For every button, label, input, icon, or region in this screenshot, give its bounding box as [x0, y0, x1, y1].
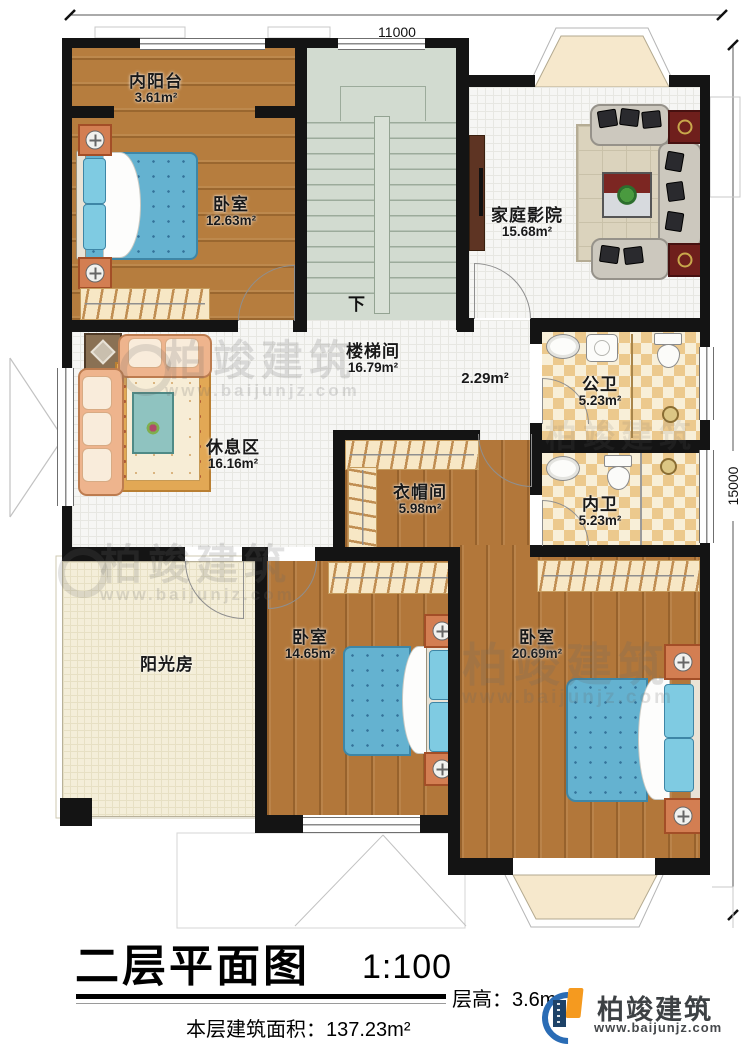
watermark-logo-icon — [120, 344, 172, 396]
room-name: 卧室 — [519, 629, 555, 647]
sofa-pillow — [664, 151, 684, 173]
wall — [530, 332, 542, 344]
stair-down-label: 下 — [348, 290, 365, 315]
plan-scale: 1:100 — [362, 948, 452, 987]
room-area: 2.29m² — [461, 371, 509, 387]
lamp-icon — [674, 653, 693, 672]
wall — [60, 798, 92, 826]
bed — [566, 678, 648, 802]
sofa-pillow — [666, 181, 685, 202]
room-area: 15.68m² — [502, 225, 552, 240]
room-label-private-bath: 内卫 5.23m² — [545, 494, 655, 530]
room-area: 16.79m² — [348, 361, 398, 376]
room-area: 16.16m² — [208, 457, 258, 472]
wall — [62, 320, 238, 332]
wall — [530, 545, 710, 557]
room-name: 家庭影院 — [491, 207, 563, 225]
pillow — [83, 204, 106, 250]
title-rule — [76, 994, 446, 999]
window — [140, 38, 265, 50]
side-table — [668, 243, 702, 277]
dimension-top: 11000 — [357, 24, 437, 40]
wardrobe — [537, 560, 700, 592]
lamp-icon — [674, 807, 693, 826]
room-label-bedroom3: 卧室 20.69m² — [485, 626, 589, 664]
room-area: 3.61m² — [135, 91, 178, 106]
room-label-bedroom2: 卧室 14.65m² — [258, 626, 362, 664]
room-name: 卧室 — [292, 629, 328, 647]
wall — [293, 320, 307, 332]
title-rule-thin — [76, 1003, 446, 1004]
room-area: 5.23m² — [579, 514, 622, 529]
sofa-cushion — [82, 376, 112, 410]
room-label-cloakroom: 衣帽间 5.98m² — [362, 482, 478, 518]
logo-icon — [542, 986, 592, 1038]
sofa-pillow — [619, 108, 640, 127]
nightstand — [78, 257, 112, 289]
floor-area: 本层建筑面积：137.23m² — [186, 1013, 411, 1042]
room-name: 内卫 — [582, 496, 618, 514]
wall — [295, 38, 307, 332]
room-name: 阳光房 — [140, 656, 194, 674]
room-area: 20.69m² — [512, 647, 562, 662]
room-label-neiyangtai: 内阳台 3.61m² — [106, 72, 206, 106]
wall — [700, 330, 710, 347]
room-name: 楼梯间 — [346, 343, 400, 361]
medallion-icon — [678, 253, 693, 268]
shower-knob — [660, 458, 677, 475]
pillow — [83, 158, 106, 204]
stair-rail — [374, 116, 390, 314]
sofa-pillow — [599, 245, 620, 264]
room-name: 卧室 — [213, 196, 249, 214]
logo-tower-blue — [553, 1000, 566, 1027]
room-label-landing: 2.29m² — [440, 370, 530, 388]
room-label-sunroom: 阳光房 — [107, 652, 227, 678]
lamp-icon — [86, 131, 105, 150]
side-table — [668, 110, 702, 144]
room-area: 14.65m² — [285, 647, 335, 662]
room-name: 休息区 — [206, 439, 260, 457]
sofa-pillow — [623, 246, 644, 265]
wall — [542, 440, 710, 453]
nightstand — [664, 644, 702, 680]
wall — [420, 815, 460, 833]
wall — [655, 858, 710, 875]
logo-tower-orange — [565, 988, 583, 1018]
shower-knob — [662, 406, 679, 423]
window — [699, 347, 714, 420]
wall — [700, 87, 710, 330]
room-name: 内阳台 — [129, 73, 183, 91]
room-area: 5.98m² — [399, 502, 442, 517]
wall — [255, 547, 267, 833]
lamp-icon — [86, 264, 105, 283]
wardrobe — [328, 562, 456, 594]
room-name: 公卫 — [582, 376, 618, 394]
wall — [457, 318, 474, 332]
dimension-right: 15000 — [725, 451, 741, 521]
sink — [546, 456, 580, 481]
wardrobe — [345, 440, 479, 470]
wall — [315, 547, 460, 561]
wall — [255, 106, 307, 118]
flower-icon — [142, 417, 164, 439]
sofa-cushion — [82, 412, 112, 446]
nightstand — [664, 798, 702, 834]
wall — [530, 318, 710, 332]
window — [699, 450, 714, 543]
sofa-pillow — [597, 109, 618, 129]
room-label-stairwell: 楼梯间 16.79m² — [313, 340, 433, 378]
wall — [62, 106, 114, 118]
wardrobe — [80, 288, 210, 320]
washing-machine — [586, 334, 618, 362]
sofa-pillow — [641, 110, 662, 129]
wall — [457, 75, 535, 87]
nightstand — [78, 124, 112, 156]
floor-plan-page: 下 内阳台 3.61m² 卧室 12.63m² 楼梯间 16.79m² 家庭影院… — [0, 0, 750, 1054]
table-top — [90, 339, 115, 364]
sofa-cushion — [82, 448, 112, 482]
room-area: 12.63m² — [206, 214, 256, 229]
window — [57, 368, 74, 506]
medallion-icon — [678, 120, 693, 135]
pillow — [664, 738, 694, 792]
room-label-rest-area: 休息区 16.16m² — [183, 436, 283, 474]
room-area: 5.23m² — [579, 394, 622, 409]
watermark-logo-icon — [58, 548, 108, 598]
room-label-public-bath: 公卫 5.23m² — [545, 374, 655, 410]
logo-url: www.baijunjz.com — [594, 1020, 722, 1035]
wall — [307, 38, 338, 48]
wall — [62, 38, 140, 48]
coffee-table — [132, 392, 174, 454]
wall — [255, 815, 303, 833]
floor-height: 层高：3.6m — [452, 983, 556, 1012]
wall — [460, 858, 513, 875]
window — [303, 817, 420, 833]
wall — [333, 430, 480, 440]
plant-icon — [614, 182, 640, 208]
wall — [62, 506, 72, 547]
pillow — [664, 684, 694, 738]
wall — [333, 430, 345, 559]
wall — [700, 543, 710, 875]
sofa-pillow — [665, 211, 685, 232]
room-label-home-theater: 家庭影院 15.68m² — [467, 204, 587, 242]
room-name: 衣帽间 — [393, 484, 447, 502]
coffee-table — [602, 172, 652, 218]
sink — [546, 334, 580, 359]
wall — [700, 420, 710, 450]
plan-title: 二层平面图 — [75, 930, 310, 994]
room-label-bedroom1: 卧室 12.63m² — [181, 194, 281, 230]
wall — [669, 75, 710, 87]
